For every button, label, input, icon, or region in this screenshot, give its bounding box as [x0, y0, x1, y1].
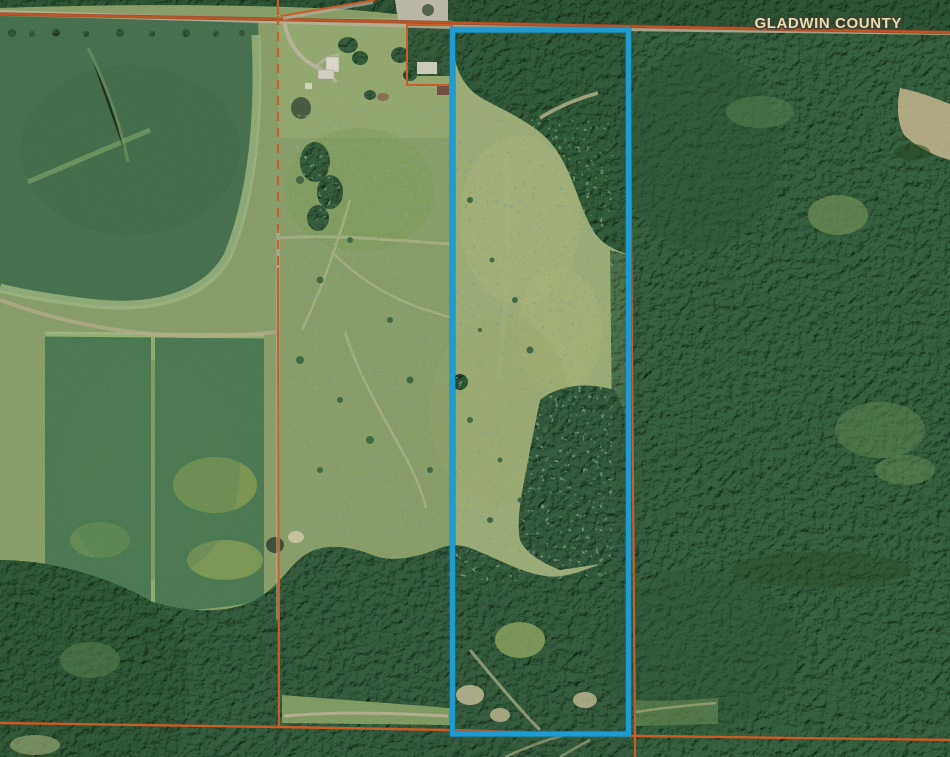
- pond: [291, 97, 311, 119]
- barn: [437, 86, 449, 95]
- satellite-basemap: GLADWIN COUNTY: [0, 0, 950, 757]
- shed: [305, 83, 312, 89]
- west-property-line: [278, 268, 279, 727]
- aerial-parcel-map: GLADWIN COUNTY: [0, 0, 950, 757]
- county-label: GLADWIN COUNTY: [754, 15, 902, 32]
- outbuilding: [417, 62, 437, 74]
- gravel-lot: [395, 0, 448, 23]
